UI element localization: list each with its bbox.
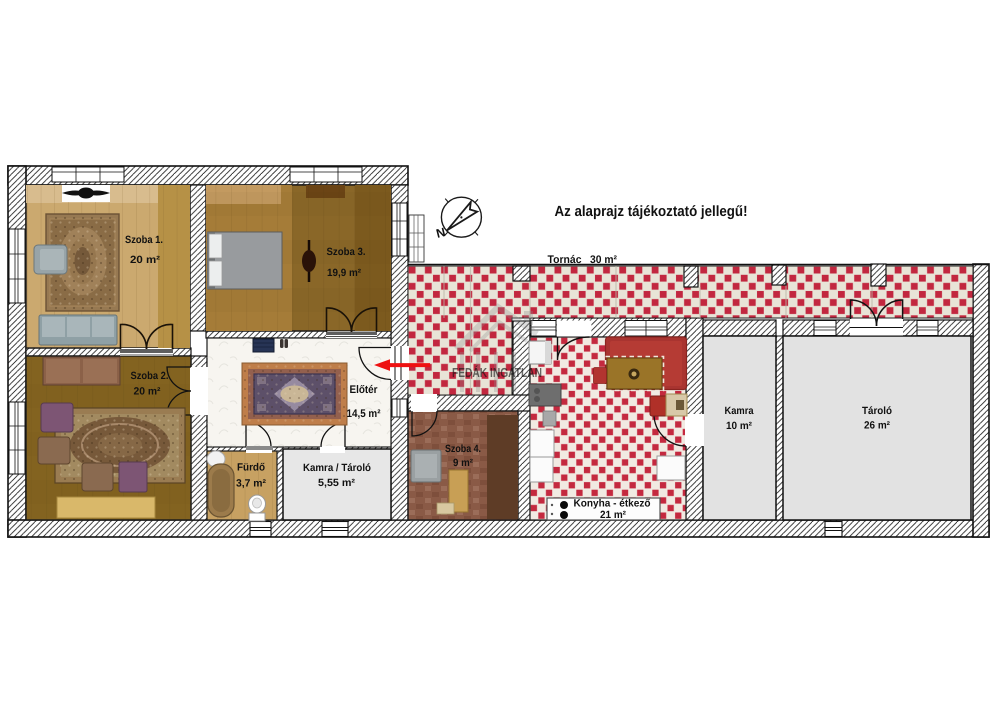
svg-text:Konyha - étkező: Konyha - étkező — [574, 498, 651, 510]
svg-text:Szoba 1.: Szoba 1. — [125, 234, 163, 246]
svg-text:Kamra: Kamra — [725, 405, 754, 417]
svg-text:19,9 m²: 19,9 m² — [327, 267, 361, 279]
svg-text:Szoba 2.: Szoba 2. — [131, 370, 169, 382]
svg-text:9 m²: 9 m² — [453, 457, 473, 469]
svg-text:26 m²: 26 m² — [864, 420, 890, 432]
svg-text:14,5 m²: 14,5 m² — [347, 408, 381, 420]
svg-text:Szoba 3.: Szoba 3. — [327, 246, 366, 258]
svg-text:Tároló: Tároló — [862, 405, 892, 417]
svg-text:Fürdő: Fürdő — [237, 462, 265, 474]
svg-text:10 m²: 10 m² — [726, 420, 752, 432]
svg-text:Kamra / Tároló: Kamra / Tároló — [303, 462, 371, 474]
svg-text:21 m²: 21 m² — [600, 509, 626, 521]
svg-text:20 m²: 20 m² — [130, 254, 161, 266]
svg-text:30 m²: 30 m² — [590, 254, 617, 266]
svg-text:Szoba 4.: Szoba 4. — [445, 443, 481, 455]
svg-text:Előtér: Előtér — [350, 384, 379, 396]
svg-text:5,55 m²: 5,55 m² — [318, 477, 356, 489]
svg-text:3,7 m²: 3,7 m² — [236, 478, 266, 490]
svg-text:FEDÁK INGATLAN: FEDÁK INGATLAN — [452, 365, 542, 380]
svg-text:Tornác: Tornác — [548, 254, 582, 266]
svg-text:Az alaprajz tájékoztató jelleg: Az alaprajz tájékoztató jellegű! — [555, 204, 748, 220]
svg-text:20 m²: 20 m² — [134, 386, 161, 398]
